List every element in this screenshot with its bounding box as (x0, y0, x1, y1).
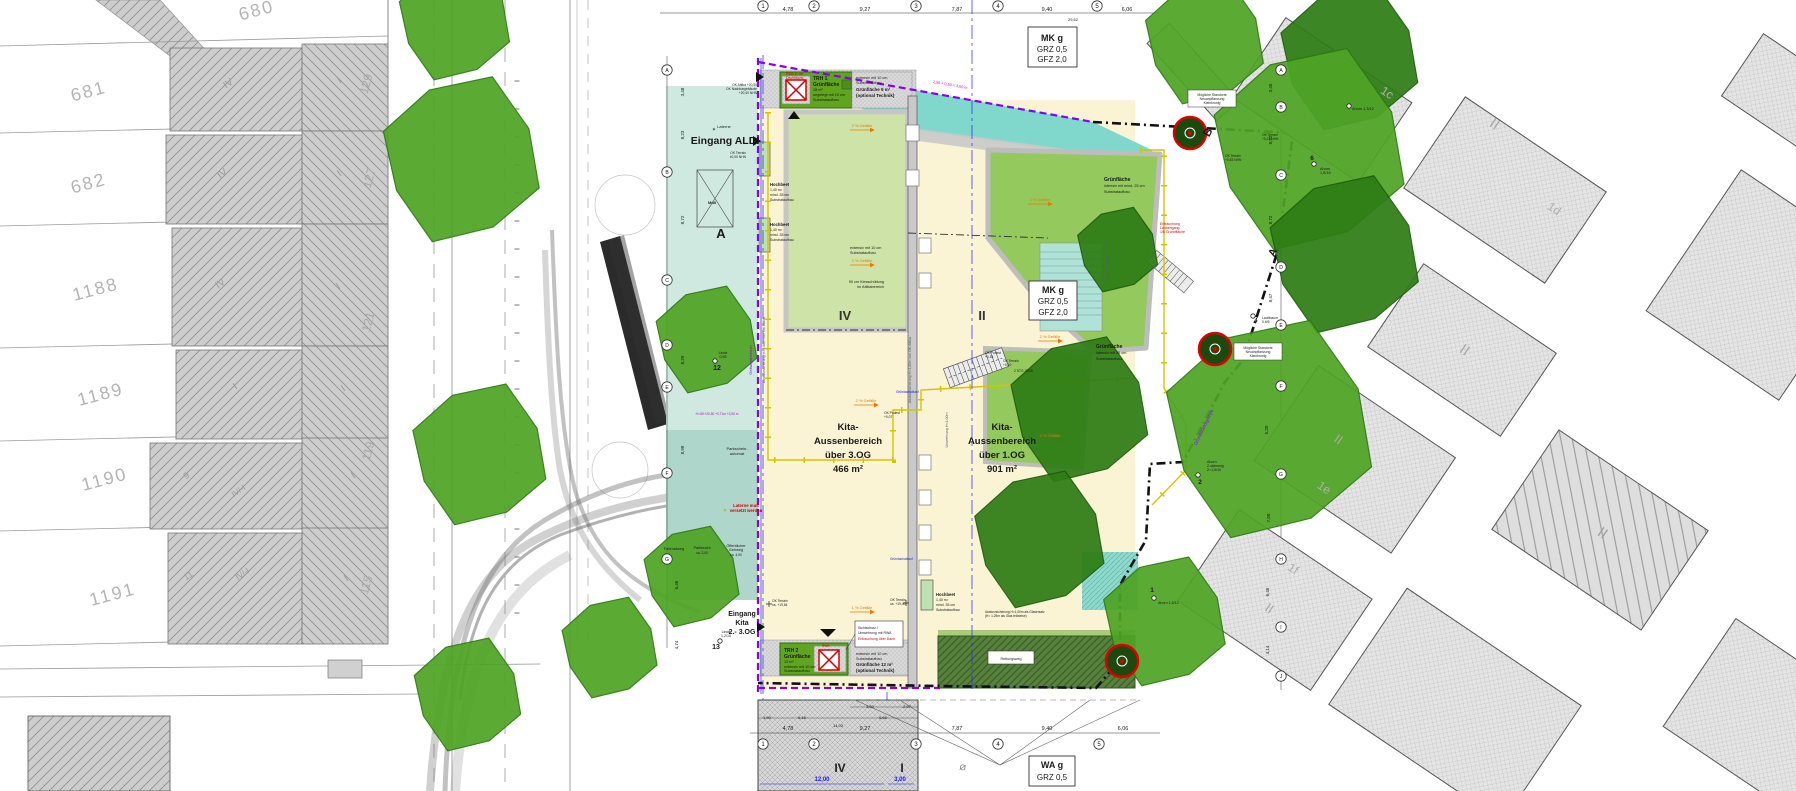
iv-block-note: extensiv mit 10 cm (850, 246, 881, 250)
trh1-planter (842, 80, 851, 89)
kita-right: Aussenbereich (968, 436, 1036, 447)
storey-ii: II (978, 308, 985, 323)
ok-podest: +0,35 (985, 355, 994, 359)
tree-6: 6 (1310, 155, 1314, 162)
hochbeet-1: Substrataufbau (770, 198, 794, 202)
dim-right: 3,45 (1268, 83, 1273, 92)
tree-red-marked (1106, 645, 1138, 677)
laterne-star: ✶ (712, 127, 716, 133)
hochbeet-2: Substrataufbau (770, 238, 794, 242)
kita-right: Kita- (991, 422, 1012, 433)
laterne-star-2: ✶ (723, 508, 727, 514)
ablauf: Gründachablauf (896, 390, 919, 394)
tree-4: 0,6/5 (1262, 320, 1270, 324)
zoning-wa: GRZ 0,5 (1037, 773, 1068, 782)
dim-left: 8,29 (680, 355, 685, 364)
svg-text:C: C (1279, 173, 1283, 179)
tree-13: 1,2/10 (721, 634, 731, 638)
dim-left: 4,74 (674, 640, 679, 649)
dim-bottom: 7,87 (952, 726, 963, 732)
tree-ahorn-top: Ahorn 1,3/12 (1352, 107, 1374, 111)
trh1: angelegt mit 10 cm (813, 93, 845, 97)
gruen-top-right: Substrataufbau (856, 81, 882, 85)
zoning-mk-mid: GFZ 2,0 (1038, 308, 1068, 317)
neuanpflanzung-2: Kleinkronig (1250, 354, 1267, 358)
hochbeet-2: mind. 35 cm (770, 233, 789, 237)
fahrradweg: Fahrradweg (664, 547, 684, 551)
tree-trunk-mark (713, 359, 717, 363)
trh1-rwa: Dachfläche (786, 76, 804, 80)
svg-text:I: I (1280, 625, 1281, 631)
grid-bubble-E: E (662, 382, 672, 392)
gefaelle: 2 % Gefälle (852, 258, 873, 263)
tree-trunk-mark (1152, 596, 1156, 600)
gruen-top-right: Grünfläche 9 m² (856, 87, 891, 92)
site-plan-drawing: 4,789,277,879,406,0629,624,789,277,879,4… (0, 0, 1796, 791)
grid-bubble-D: D (662, 340, 672, 350)
storey-i-south: I (900, 761, 903, 775)
gefaelle: 1 % Gefälle (852, 605, 873, 610)
kita-left: Kita- (837, 422, 858, 433)
tree-trunk-mark (1196, 473, 1200, 477)
garden-big: Substrataufbau (1104, 190, 1130, 194)
svg-text:G: G (665, 557, 669, 563)
dim-right: 4,14 (1265, 645, 1270, 654)
grid-bubble-F: F (1276, 381, 1286, 391)
note-rwa: Sichtschutz / (858, 626, 878, 630)
ok-terrain: +0,10 (1003, 363, 1012, 367)
dim-bottom: 4,78 (783, 726, 794, 732)
ok-terrain: +0,83 NHN (1225, 158, 1242, 162)
tree-trunk-mark (1312, 162, 1316, 166)
grid-bubble-5: 5 (1092, 1, 1102, 11)
ok-terrain: ca. +19,40 (890, 602, 906, 606)
svg-text:F: F (665, 471, 668, 477)
note-rwa: Entrauchung über Dach (858, 637, 895, 641)
kita-left: 466 m² (833, 464, 863, 475)
absturz: Absturzsicherung H=1,00m (1105, 240, 1109, 283)
grid-bubble-3: 3 (911, 739, 921, 749)
grid-bubble-H: H (1276, 554, 1286, 564)
absturz: Absturzsicherung H=1,80m von OK Attika (762, 317, 766, 383)
tree-trunk-mark (1347, 104, 1351, 108)
gehweg: Gehweg (729, 548, 743, 552)
svg-text:C: C (665, 278, 669, 284)
garden-big: intensiv mit mind. 25 cm (1104, 184, 1145, 188)
grid-bubble-2: 2 (809, 739, 819, 749)
garden-mid: Substrataufbau (1096, 357, 1122, 361)
dim-bottom: 9,40 (1042, 726, 1053, 732)
trh2: Substrataufbau (784, 669, 810, 673)
trh1: 15 m² (813, 88, 823, 92)
entrance-aldi: Eingang ALDI (691, 135, 760, 147)
dim-right: 8,72 (1268, 215, 1273, 224)
rettungsweg: Rettungsweg (1001, 657, 1022, 661)
kita-right: 901 m² (987, 464, 1017, 475)
gruen-bottom-right: (optional Technik) (856, 668, 895, 673)
zoning-mk-top: GRZ 0,5 (1037, 45, 1068, 54)
kies-note: im Attikabereich (857, 285, 884, 289)
dim-top: 7,87 (952, 7, 963, 13)
gehweg: ca. 4,00 (730, 553, 742, 557)
tree-trunk-mark (718, 639, 722, 643)
dim-left: 3,48 (680, 87, 685, 96)
gefaelle: 2 % Gefälle (856, 398, 877, 403)
ok-podest: +0,07 (884, 415, 893, 419)
gefaelle: 2 % Gefälle (852, 123, 873, 128)
note-rwa: Umwehrung mit RWA (858, 631, 892, 635)
green-roof-block (786, 112, 908, 330)
garden-big: Grünfläche (1104, 177, 1131, 183)
bottom-left-building (28, 716, 170, 791)
dim-top: 4,78 (783, 7, 794, 13)
svg-text:G: G (1279, 472, 1283, 478)
zoning-mk-mid: MK g (1042, 285, 1064, 295)
gruen-bottom-right: extensiv mit 10 cm (856, 652, 887, 656)
ok-attika: +20,40 NHN (739, 91, 758, 95)
grid-bubble-4: 4 (993, 739, 1003, 749)
grid-bubble-4: 4 (993, 1, 1003, 11)
hochbeet-3: 1,40 m² (936, 598, 949, 602)
dim-bottom-small: 6,66 (879, 715, 888, 720)
svg-text:D: D (665, 343, 669, 349)
dim-bottom: 9,27 (860, 726, 871, 732)
tree-12: 12 (713, 365, 721, 372)
dim-top: 9,27 (860, 7, 871, 13)
tree-red-marked (1199, 333, 1231, 365)
hochbeet-1: Hochbeet (770, 182, 790, 187)
parkbucht: Parkbucht (693, 546, 711, 550)
dim-right: 5,20 (1264, 425, 1269, 434)
ok-terrain: +0,23 NHN (1262, 137, 1279, 141)
grid-bubble-I: I (1276, 622, 1286, 632)
parkschein: automat (730, 451, 745, 456)
gefaelle: 2 % Gefälle (1040, 334, 1061, 339)
gefaelle: 2 % Gefälle (1030, 197, 1051, 202)
storey-iv-south: IV (834, 761, 845, 775)
trh1: Substrataufbau (813, 98, 839, 102)
hochbeet-2: Hochbeet (770, 222, 790, 227)
storey-iv: IV (839, 308, 852, 323)
svg-text:D: D (1279, 265, 1283, 271)
zoning-mk-top: GFZ 2,0 (1037, 55, 1067, 64)
hochbeet-3: Hochbeet (936, 592, 956, 597)
tree-2: 2 (1198, 479, 1202, 486)
tree-2: 2=1,5/10 (1207, 468, 1221, 472)
tree-12: 0,55 (720, 355, 727, 359)
muell: Müll (708, 200, 716, 205)
entrauchung: 1/8 Grundfläche (1160, 230, 1185, 234)
dim-left: 8,23 (680, 130, 685, 139)
iv-block-note: Substrataufbau (850, 251, 876, 255)
mass-magenta: H=OK+20,50 +0,71m +2,50 m (696, 412, 739, 416)
gruen-top-right: extensiv mit 10 cm (856, 76, 887, 80)
entrance-kita: Kita (735, 620, 748, 627)
grid-bubble-B: B (1276, 102, 1286, 112)
tree-13: 13 (712, 644, 720, 651)
dim-blue: 3,00 (894, 777, 906, 783)
trh2-rwa: RWA (822, 644, 830, 648)
grid-bubble-J: J (1276, 671, 1286, 681)
dim-bottom-small: 1,90 (763, 715, 772, 720)
grid-bubble-F: F (662, 468, 672, 478)
trh2: 12 m² (784, 660, 794, 664)
grid-bubble-E: E (1276, 320, 1286, 330)
dim-right: 6,46 (1265, 587, 1270, 596)
grid-bubble-C: C (1276, 170, 1286, 180)
hochbeet-1: 1,40 m² (770, 188, 783, 192)
dim-top-total: 29,62 (1068, 17, 1079, 22)
dim-right: 7,50 (1266, 513, 1271, 522)
kita-left: Aussenbereich (814, 436, 882, 447)
ok-terrain: ±0,00 NHN (730, 155, 747, 159)
svg-text:F: F (1279, 384, 1282, 390)
svg-text:H: H (1279, 557, 1283, 563)
geltungsbereich: Geltungsbereich (748, 345, 753, 374)
grid-bubble-1: 1 (758, 1, 768, 11)
dim-left: 8,72 (680, 215, 685, 224)
grid-bubble-G: G (1276, 469, 1286, 479)
grid-bubble-1: 1 (758, 739, 768, 749)
gefaelle: 2 % Gefälle (1040, 433, 1061, 438)
hochbeet-3: mind. 35 cm (936, 603, 955, 607)
kita-right: über 1.OG (979, 450, 1025, 461)
grid-bubble-B: B (662, 167, 672, 177)
grid-bubble-5: 5 (1094, 739, 1104, 749)
dim-left: 6,46 (674, 580, 679, 589)
hochbeet-3: Substrataufbau (936, 608, 960, 612)
dim-bottom-small: 14,03 (833, 723, 844, 728)
garden-mid: intensiv mit 25 cm (1096, 351, 1126, 355)
absturz-glas: (H= 1,25m als Glas teilweise) (985, 614, 1027, 618)
green-edge (938, 630, 1135, 636)
gruen-bottom-right: Substrataufbau (856, 657, 882, 661)
grid-bubble-G: G (662, 554, 672, 564)
laterne: Laterne (717, 124, 731, 129)
grid-bubble-C: C (662, 275, 672, 285)
hochbeet-2: 1,40 m² (770, 228, 783, 232)
grid-bubble-A: A (1276, 65, 1286, 75)
dim-top: 6,06 (1122, 7, 1133, 13)
dim-right: 8,47 (1268, 293, 1273, 302)
parkbucht: ca. 2,00 (696, 551, 708, 555)
umwehrung: Umwehrung H=1,00m (945, 412, 949, 447)
gruen-bottom-right: Grünfläche 12 m² (856, 662, 893, 667)
street-furniture-box (328, 660, 362, 678)
ablauf: Gründachablauf (890, 557, 913, 561)
neuanpflanzung-1: Kleinkronig (1204, 101, 1221, 105)
stair-note: 2 STG 18/28 (1014, 369, 1033, 373)
hochbeet-1: mind. 35 cm (770, 193, 789, 197)
zoning-mk-top: MK g (1041, 33, 1063, 43)
grid-bubble-A: A (662, 65, 672, 75)
dim-bottom-small: 3,30 (866, 704, 875, 709)
garden-mid: Grünfläche (1096, 344, 1123, 350)
dim-top: 9,40 (1042, 7, 1053, 13)
tree-6: 1,5/16 (1320, 171, 1331, 175)
entrance-kita: 2.- 3.OG (729, 629, 756, 636)
dim-bottom-small: 2,97 (903, 704, 912, 709)
entrance-kita: Eingang (728, 611, 756, 618)
gruen-top-right: (optional Technik) (856, 93, 895, 98)
hochbeet-rect-3 (921, 580, 933, 610)
grid-bubble-D: D (1276, 262, 1286, 272)
grid-bubble-3: 3 (911, 1, 921, 11)
kita-left: über 3.OG (825, 450, 871, 461)
zoning-mk-mid: GRZ 0,5 (1038, 297, 1069, 306)
dim-blue: 12,00 (814, 777, 830, 783)
zoning-wa: WA g (1041, 760, 1063, 770)
laterne-versetzt: versetzt werden (730, 508, 763, 513)
tree-1: Ahorn 1,5/12 (1158, 601, 1179, 605)
tree-1: 1 (1150, 587, 1154, 594)
dim-left: 8,98 (680, 445, 685, 454)
section-a-left: A (716, 226, 726, 241)
kies-note: 90 cm Kiesschüttung (849, 280, 884, 284)
dim-bottom: 6,06 (1118, 726, 1129, 732)
grid-bubble-2: 2 (809, 1, 819, 11)
ok-terrain: ca. +19,84 (772, 603, 788, 607)
dim-bottom-small: 6,16 (798, 715, 807, 720)
